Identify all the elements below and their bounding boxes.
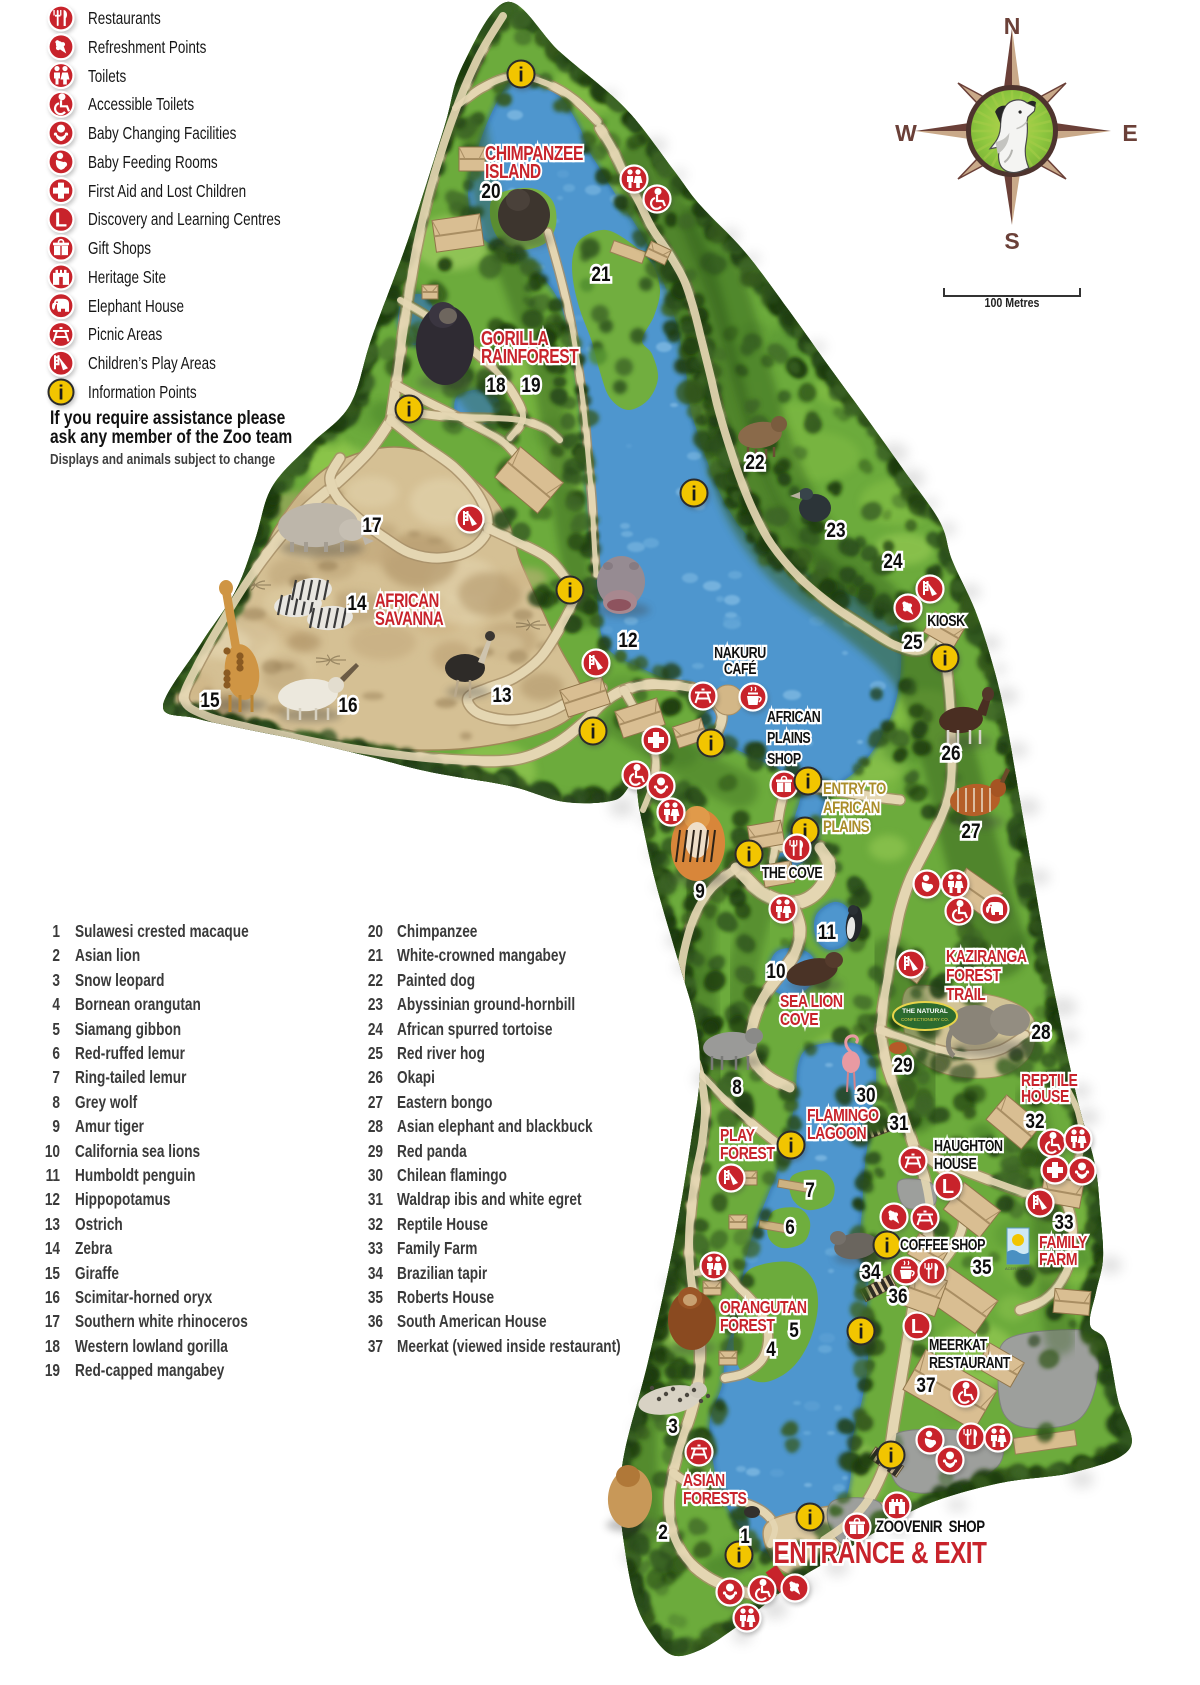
svg-text:THE NATURAL: THE NATURAL <box>902 1008 948 1015</box>
svg-text:KIOSK: KIOSK <box>927 613 965 631</box>
svg-text:7: 7 <box>52 1069 60 1088</box>
svg-text:RAINFOREST: RAINFOREST <box>481 345 579 367</box>
svg-text:Discovery and Learning Centres: Discovery and Learning Centres <box>88 210 281 229</box>
svg-text:ISLAND: ISLAND <box>485 160 541 182</box>
svg-text:26: 26 <box>941 743 960 766</box>
svg-text:L: L <box>911 1316 923 1338</box>
svg-text:Meerkat (viewed inside restaur: Meerkat (viewed inside restaurant) <box>397 1338 621 1357</box>
svg-text:i: i <box>942 649 948 671</box>
svg-text:Reptile House: Reptile House <box>397 1216 488 1235</box>
svg-text:32: 32 <box>1025 1111 1044 1134</box>
svg-text:Asian elephant and blackbuck: Asian elephant and blackbuck <box>397 1118 593 1137</box>
svg-text:i: i <box>590 722 596 744</box>
svg-text:Scimitar-horned oryx: Scimitar-horned oryx <box>75 1289 212 1308</box>
svg-text:Red-capped mangabey: Red-capped mangabey <box>75 1362 225 1381</box>
svg-text:i: i <box>858 1322 864 1344</box>
svg-text:6: 6 <box>785 1217 795 1240</box>
svg-text:26: 26 <box>368 1069 383 1088</box>
svg-text:Red panda: Red panda <box>397 1143 467 1162</box>
svg-text:Abyssinian ground-hornbill: Abyssinian ground-hornbill <box>397 996 575 1015</box>
svg-text:29: 29 <box>368 1143 383 1162</box>
svg-text:25: 25 <box>368 1045 383 1064</box>
svg-text:28: 28 <box>1031 1022 1050 1045</box>
svg-text:Restaurants: Restaurants <box>88 9 161 28</box>
svg-text:15: 15 <box>200 690 219 713</box>
svg-text:PLAINS: PLAINS <box>823 818 869 837</box>
svg-text:5: 5 <box>52 1021 60 1040</box>
svg-text:35: 35 <box>972 1257 991 1280</box>
svg-text:COFFEE SHOP: COFFEE SHOP <box>900 1237 986 1255</box>
svg-text:CAFÉ: CAFÉ <box>724 660 756 679</box>
svg-text:Hippopotamus: Hippopotamus <box>75 1191 171 1210</box>
svg-text:ZOOVENIR SHOP: ZOOVENIR SHOP <box>876 1518 985 1537</box>
svg-text:AFRICAN: AFRICAN <box>823 799 880 818</box>
svg-text:HOUSE: HOUSE <box>1021 1086 1070 1106</box>
svg-text:17: 17 <box>45 1313 60 1332</box>
svg-text:Zebra: Zebra <box>75 1240 112 1259</box>
svg-text:28: 28 <box>368 1118 383 1137</box>
svg-text:33: 33 <box>1054 1212 1073 1235</box>
svg-text:9: 9 <box>52 1118 60 1137</box>
svg-text:10: 10 <box>766 961 785 984</box>
svg-text:Humboldt penguin: Humboldt penguin <box>75 1167 196 1186</box>
svg-text:21: 21 <box>368 947 383 966</box>
svg-text:Asian lion: Asian lion <box>75 947 140 966</box>
svg-text:i: i <box>567 581 573 603</box>
svg-text:11: 11 <box>46 1167 61 1186</box>
svg-text:36: 36 <box>368 1313 383 1332</box>
svg-text:19: 19 <box>45 1362 60 1381</box>
svg-text:i: i <box>888 1446 894 1468</box>
svg-text:RESTAURANT: RESTAURANT <box>929 1355 1011 1373</box>
svg-text:W: W <box>895 120 917 146</box>
svg-text:White-crowned mangabey: White-crowned mangabey <box>397 947 566 966</box>
svg-text:i: i <box>58 383 64 405</box>
svg-text:19: 19 <box>521 375 540 398</box>
svg-text:i: i <box>691 484 697 506</box>
svg-text:11: 11 <box>818 922 836 945</box>
svg-text:California sea lions: California sea lions <box>75 1143 200 1162</box>
svg-text:9: 9 <box>695 881 705 904</box>
svg-text:HAUGHTON: HAUGHTON <box>934 1138 1003 1156</box>
svg-text:Roberts House: Roberts House <box>397 1289 494 1308</box>
svg-text:Picnic Areas: Picnic Areas <box>88 325 162 344</box>
svg-text:Ostrich: Ostrich <box>75 1216 123 1235</box>
svg-text:Eastern bongo: Eastern bongo <box>397 1094 493 1113</box>
svg-text:35: 35 <box>368 1289 383 1308</box>
svg-text:8: 8 <box>52 1094 60 1113</box>
svg-text:African spurred tortoise: African spurred tortoise <box>397 1021 553 1040</box>
svg-text:24: 24 <box>368 1021 383 1040</box>
svg-text:22: 22 <box>368 972 383 991</box>
svg-text:Okapi: Okapi <box>397 1069 435 1088</box>
svg-text:HOUSE: HOUSE <box>934 1156 976 1174</box>
svg-text:34: 34 <box>368 1265 383 1284</box>
svg-text:Southern white rhinoceros: Southern white rhinoceros <box>75 1313 248 1332</box>
svg-text:i: i <box>708 734 714 756</box>
svg-text:29: 29 <box>893 1055 912 1078</box>
svg-text:Painted dog: Painted dog <box>397 972 475 991</box>
svg-text:SHOP: SHOP <box>767 751 802 769</box>
svg-text:Children’s Play Areas: Children’s Play Areas <box>88 354 216 373</box>
svg-text:23: 23 <box>368 996 383 1015</box>
svg-text:2: 2 <box>658 1522 668 1545</box>
svg-text:3: 3 <box>668 1416 678 1439</box>
svg-text:16: 16 <box>45 1289 60 1308</box>
svg-text:Amur tiger: Amur tiger <box>75 1118 144 1137</box>
svg-text:Grey wolf: Grey wolf <box>75 1094 138 1113</box>
svg-text:First Aid and Lost Children: First Aid and Lost Children <box>88 182 246 201</box>
svg-text:4: 4 <box>766 1339 776 1362</box>
svg-text:18: 18 <box>486 375 505 398</box>
svg-text:30: 30 <box>856 1085 875 1108</box>
svg-text:5: 5 <box>789 1320 799 1343</box>
svg-text:36: 36 <box>888 1286 907 1309</box>
svg-text:CONFECTIONERY CO.: CONFECTIONERY CO. <box>901 1017 949 1022</box>
svg-text:L: L <box>55 209 67 231</box>
svg-text:THE COVE: THE COVE <box>762 865 823 883</box>
svg-text:Giraffe: Giraffe <box>75 1265 119 1284</box>
svg-text:FOREST: FOREST <box>946 965 1001 985</box>
svg-text:Baby Changing Facilities: Baby Changing Facilities <box>88 124 236 143</box>
svg-text:7: 7 <box>805 1180 815 1203</box>
svg-text:4: 4 <box>52 996 60 1015</box>
svg-text:2: 2 <box>52 947 60 966</box>
svg-text:37: 37 <box>368 1338 383 1357</box>
svg-text:ACER FARMS: ACER FARMS <box>1005 1266 1031 1271</box>
svg-text:Sulawesi crested macaque: Sulawesi crested macaque <box>75 923 249 942</box>
svg-text:Siamang gibbon: Siamang gibbon <box>75 1021 181 1040</box>
svg-text:31: 31 <box>368 1191 383 1210</box>
svg-text:1: 1 <box>52 923 60 942</box>
svg-text:N: N <box>1004 13 1021 39</box>
svg-text:6: 6 <box>52 1045 60 1064</box>
svg-text:ENTRY TO: ENTRY TO <box>823 780 886 799</box>
svg-text:PLAINS: PLAINS <box>767 730 810 748</box>
svg-text:i: i <box>406 400 412 422</box>
svg-text:30: 30 <box>368 1167 383 1186</box>
svg-text:FORESTS: FORESTS <box>683 1488 747 1508</box>
svg-text:South American House: South American House <box>397 1313 547 1332</box>
svg-text:COVE: COVE <box>780 1009 819 1029</box>
svg-text:Brazilian tapir: Brazilian tapir <box>397 1265 487 1284</box>
svg-text:23: 23 <box>826 520 845 543</box>
svg-text:Baby Feeding Rooms: Baby Feeding Rooms <box>88 153 218 172</box>
svg-text:10: 10 <box>45 1143 60 1162</box>
svg-text:S: S <box>1004 228 1019 254</box>
svg-text:17: 17 <box>362 515 381 538</box>
svg-text:14: 14 <box>347 593 366 616</box>
svg-text:Western lowland gorilla: Western lowland gorilla <box>75 1338 228 1357</box>
svg-text:FARM: FARM <box>1039 1249 1077 1269</box>
svg-text:AFRICAN: AFRICAN <box>767 709 820 727</box>
svg-text:Information Points: Information Points <box>88 383 197 402</box>
svg-text:Toilets: Toilets <box>88 67 126 86</box>
svg-text:SAVANNA: SAVANNA <box>375 608 443 629</box>
svg-text:Accessible Toilets: Accessible Toilets <box>88 95 194 114</box>
svg-text:TRAIL: TRAIL <box>946 984 986 1004</box>
svg-text:32: 32 <box>368 1216 383 1235</box>
svg-text:24: 24 <box>883 551 902 574</box>
svg-text:LAGOON: LAGOON <box>807 1123 866 1143</box>
svg-text:18: 18 <box>45 1338 60 1357</box>
svg-text:12: 12 <box>618 630 637 653</box>
svg-text:i: i <box>788 1136 794 1158</box>
svg-text:Chilean flamingo: Chilean flamingo <box>397 1167 507 1186</box>
svg-text:3: 3 <box>52 972 60 991</box>
svg-text:ask any member of the Zoo team: ask any member of the Zoo team <box>50 426 292 448</box>
svg-text:15: 15 <box>45 1265 60 1284</box>
svg-text:Family Farm: Family Farm <box>397 1240 477 1259</box>
svg-text:Ring-tailed lemur: Ring-tailed lemur <box>75 1069 186 1088</box>
svg-text:Red river hog: Red river hog <box>397 1045 485 1064</box>
svg-text:34: 34 <box>861 1262 880 1285</box>
svg-text:ENTRANCE & EXIT: ENTRANCE & EXIT <box>774 1535 987 1570</box>
svg-text:Heritage Site: Heritage Site <box>88 268 166 287</box>
svg-text:33: 33 <box>368 1240 383 1259</box>
svg-text:i: i <box>736 1546 742 1568</box>
svg-text:L: L <box>942 1176 954 1198</box>
svg-text:Elephant House: Elephant House <box>88 297 184 316</box>
svg-text:i: i <box>805 772 811 794</box>
svg-text:i: i <box>884 1236 890 1258</box>
svg-text:16: 16 <box>338 695 357 718</box>
svg-text:Displays and animals subject t: Displays and animals subject to change <box>50 451 275 467</box>
svg-text:E: E <box>1122 120 1137 146</box>
svg-text:25: 25 <box>903 632 922 655</box>
svg-text:i: i <box>807 1508 813 1530</box>
svg-text:12: 12 <box>45 1191 60 1210</box>
svg-text:Waldrap ibis and white egret: Waldrap ibis and white egret <box>397 1191 582 1210</box>
svg-text:31: 31 <box>889 1113 908 1136</box>
svg-text:13: 13 <box>45 1216 60 1235</box>
svg-text:FOREST: FOREST <box>720 1315 775 1335</box>
svg-text:Refreshment Points: Refreshment Points <box>88 38 206 57</box>
svg-text:37: 37 <box>916 1375 935 1398</box>
svg-text:Gift Shops: Gift Shops <box>88 239 151 258</box>
svg-text:Bornean orangutan: Bornean orangutan <box>75 996 201 1015</box>
svg-text:Red-ruffed lemur: Red-ruffed lemur <box>75 1045 185 1064</box>
svg-text:Snow leopard: Snow leopard <box>75 972 164 991</box>
svg-text:100 Metres: 100 Metres <box>985 296 1040 310</box>
svg-text:13: 13 <box>492 685 511 708</box>
svg-text:8: 8 <box>732 1077 742 1100</box>
svg-text:i: i <box>746 845 752 867</box>
svg-text:27: 27 <box>961 821 980 844</box>
svg-text:27: 27 <box>368 1094 383 1113</box>
svg-text:FOREST: FOREST <box>720 1143 775 1163</box>
svg-text:21: 21 <box>591 264 610 287</box>
svg-text:22: 22 <box>745 452 764 475</box>
svg-text:Chimpanzee: Chimpanzee <box>397 923 478 942</box>
svg-text:1: 1 <box>740 1526 750 1549</box>
svg-text:20: 20 <box>481 181 500 204</box>
svg-text:MEERKAT: MEERKAT <box>929 1337 988 1355</box>
svg-text:14: 14 <box>45 1240 60 1259</box>
svg-text:i: i <box>518 65 524 87</box>
svg-text:KAZIRANGA: KAZIRANGA <box>946 946 1027 966</box>
svg-text:20: 20 <box>368 923 383 942</box>
